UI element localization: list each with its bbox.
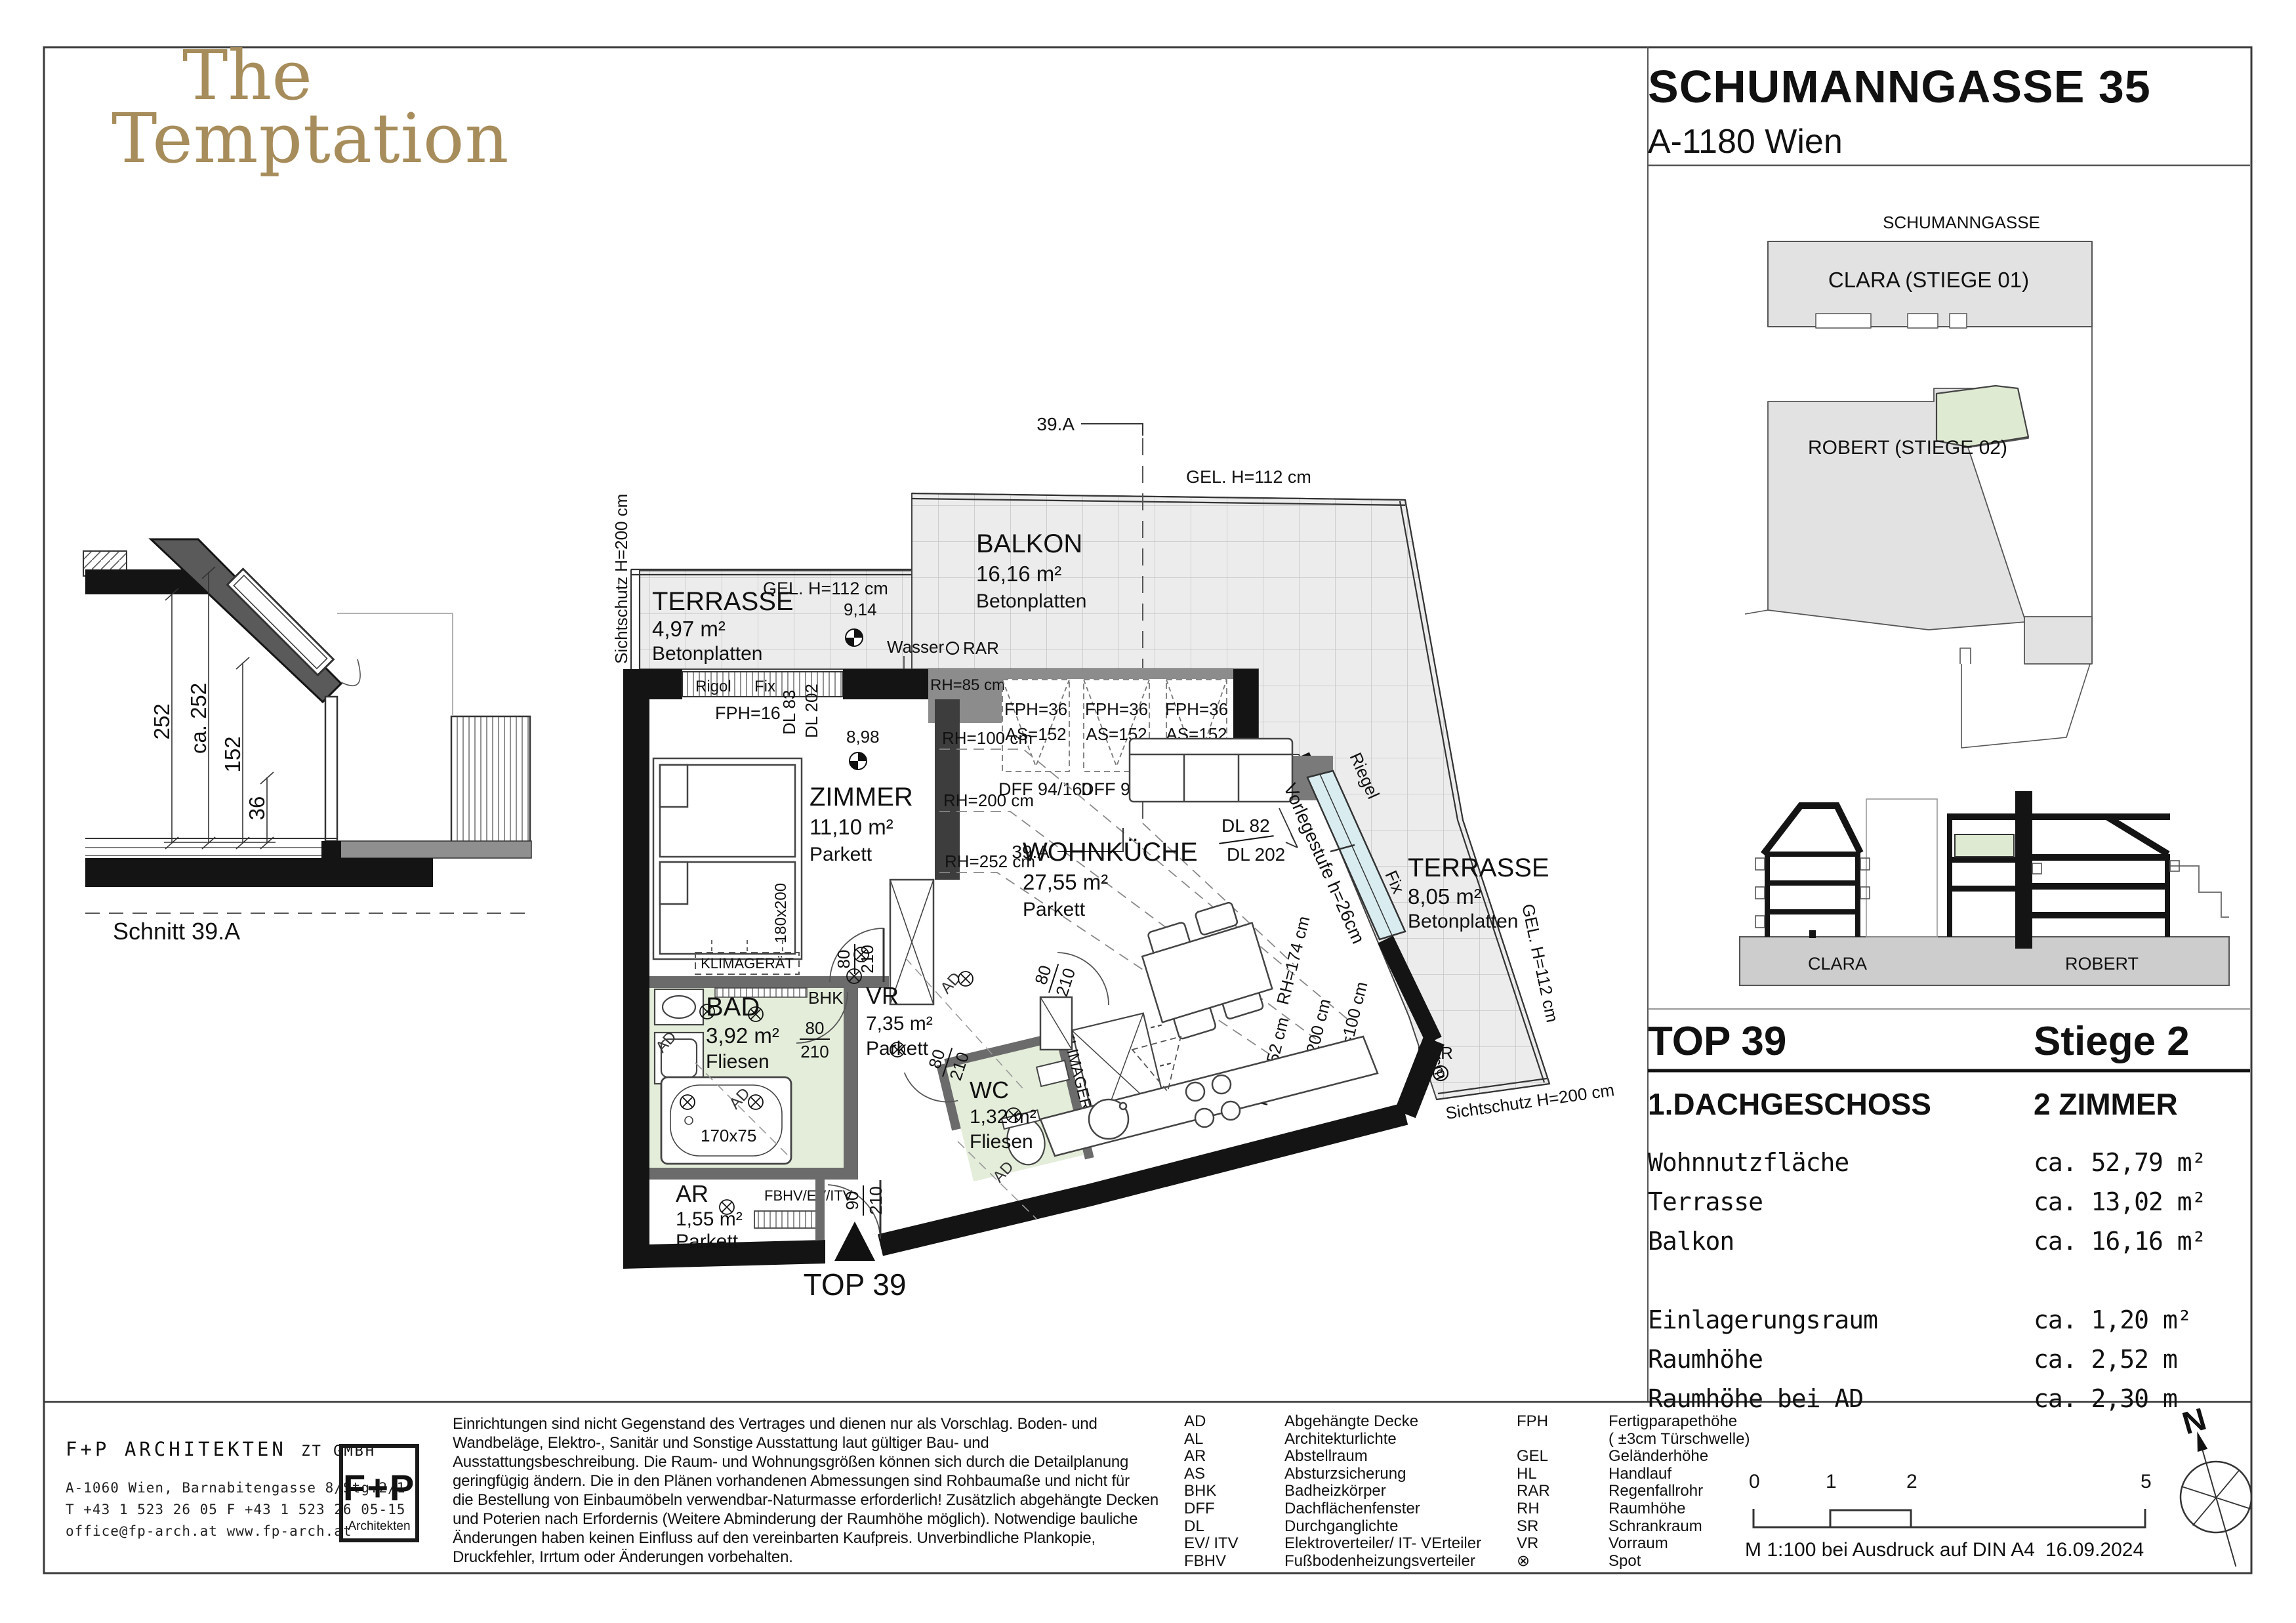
legend-desc: Architekturlichte xyxy=(1284,1431,1397,1448)
architect-logo-bottom: Architekten xyxy=(343,1519,415,1534)
site-plan: SCHUMANNGASSE CLARA (STIEGE 01) ROBERT (… xyxy=(1745,213,2092,748)
scale-0: 0 xyxy=(1749,1471,1760,1492)
fbhv-unit xyxy=(754,1211,820,1228)
brand-logo: The Temptation xyxy=(112,45,509,170)
legend-desc: Vorraum xyxy=(1609,1535,1668,1553)
info-row-label: Raumhöhe xyxy=(1648,1345,1763,1374)
architect-logo: F+P Architekten xyxy=(339,1444,419,1542)
legend-abbr: RH xyxy=(1517,1500,1609,1518)
legend-desc: Dachflächenfenster xyxy=(1284,1500,1420,1518)
balkon-area: 16,16 m² xyxy=(976,562,1061,586)
terrace1-name: TERRASSE xyxy=(652,587,794,616)
info-row-value: ca. 2,30 m xyxy=(2034,1384,2177,1413)
legend-abbr: SR xyxy=(1517,1518,1609,1536)
dl202-label: DL 202 xyxy=(802,684,821,738)
terrace1-floor: Betonplatten xyxy=(652,643,762,665)
section-dim-ca252: ca. 252 xyxy=(186,683,211,754)
legend-abbr xyxy=(1517,1431,1609,1448)
elevation-clara-label: CLARA xyxy=(1808,954,1867,974)
info-rooms: 2 ZIMMER xyxy=(2034,1086,2178,1122)
door-label-wk: 80 210 xyxy=(1029,958,1080,1000)
vr-name: VR xyxy=(866,982,899,1009)
dining-table xyxy=(1135,897,1279,1042)
legend-desc: Geländerhöhe xyxy=(1609,1448,1708,1466)
legend-abbr: BHK xyxy=(1184,1483,1284,1500)
survey-point-icon xyxy=(846,629,863,646)
architect-logo-top: F+P xyxy=(343,1466,415,1509)
sheet-drawing: SCHUMANNGASSE CLARA (STIEGE 01) ROBERT (… xyxy=(0,0,2296,1623)
site-robert-label: ROBERT (STIEGE 02) xyxy=(1808,437,2007,459)
rh100-label: RH=100 cm xyxy=(942,728,1033,748)
wasser-label: Wasser xyxy=(887,637,944,657)
vr-floor: Parkett xyxy=(866,1038,929,1059)
legend-abbr: HL xyxy=(1517,1466,1609,1483)
legend-column-2: FPHFertigparapethöhe ( ±3cm Türschwelle)… xyxy=(1517,1413,1750,1570)
elevation-robert-label: ROBERT xyxy=(2065,954,2139,974)
point-914: 9,14 xyxy=(844,600,877,619)
gel-label-top: GEL. H=112 cm xyxy=(1186,467,1311,487)
legend-abbr: DL xyxy=(1184,1518,1284,1536)
terrace1-area: 4,97 m² xyxy=(652,617,726,641)
legend-abbr: VR xyxy=(1517,1535,1609,1553)
fph36-2: FPH=36 xyxy=(1085,699,1148,719)
elevation-drawing: CLARA ROBERT xyxy=(1740,791,2229,985)
entrance-marker xyxy=(834,1222,875,1261)
svg-text:210: 210 xyxy=(800,1042,829,1061)
legend-abbr: AR xyxy=(1184,1448,1284,1466)
brand-logo-line2: Temptation xyxy=(112,108,509,171)
project-header: SCHUMANNGASSE 35 A-1180 Wien xyxy=(1648,60,2151,161)
legend-desc: Regenfallrohr xyxy=(1609,1483,1703,1500)
elevation-unit-highlight xyxy=(1955,834,2014,857)
section-dim-36: 36 xyxy=(245,796,269,821)
elevation-robert-building xyxy=(1947,791,2229,949)
wk-area: 27,55 m² xyxy=(1023,870,1108,894)
fph36-1: FPH=36 xyxy=(1004,699,1067,719)
info-row-value: ca. 52,79 m² xyxy=(2034,1148,2206,1177)
info-row-label: Terrasse xyxy=(1648,1187,1763,1216)
section-mark-top: 39.A xyxy=(1036,414,1075,434)
door-label-wc: 80 210 xyxy=(923,1042,974,1084)
bed-size-label: 180x200 xyxy=(772,883,790,943)
legend-abbr: FPH xyxy=(1517,1413,1609,1431)
balkon-floor: Betonplatten xyxy=(976,590,1086,612)
legend-desc: ( ±3cm Türschwelle) xyxy=(1609,1431,1750,1448)
bad-floor: Fliesen xyxy=(706,1051,769,1073)
info-top: TOP 39 xyxy=(1648,1018,1786,1065)
balkon-name: BALKON xyxy=(976,529,1082,558)
legend-desc: Abgehängte Decke xyxy=(1284,1413,1418,1431)
legend-column-1: ADAbgehängte Decke ALArchitekturlichte A… xyxy=(1184,1413,1481,1570)
legend-abbr: FBHV xyxy=(1184,1553,1284,1571)
wk-floor: Parkett xyxy=(1023,899,1086,920)
sofa xyxy=(1130,739,1292,802)
legend-desc: Abstellraum xyxy=(1284,1448,1368,1466)
rh200-label: RH=200 cm xyxy=(943,791,1034,810)
dl83-label: DL 83 xyxy=(779,690,799,735)
bathtub xyxy=(661,1077,791,1164)
bad-area: 3,92 m² xyxy=(706,1023,779,1048)
scale-5: 5 xyxy=(2141,1471,2152,1492)
svg-text:80: 80 xyxy=(834,950,853,969)
terrace2-name: TERRASSE xyxy=(1408,853,1549,882)
info-row-label: Raumhöhe bei AD xyxy=(1648,1384,1863,1413)
section-drawing: 252 ca. 252 152 36 Schnitt 39.A xyxy=(83,539,531,945)
svg-text:210: 210 xyxy=(866,1186,886,1214)
zimmer-area: 11,10 m² xyxy=(810,815,893,839)
plan-sheet: SCHUMANNGASSE CLARA (STIEGE 01) ROBERT (… xyxy=(0,0,2296,1623)
disclaimer-text: Einrichtungen sind nicht Gegenstand des … xyxy=(453,1414,1179,1567)
legend-desc: Handlauf xyxy=(1609,1466,1671,1483)
wall-bad-bottom xyxy=(649,1168,858,1180)
wall-left xyxy=(623,669,649,1257)
legend-desc: Raumhöhe xyxy=(1609,1500,1685,1518)
wc-floor: Fliesen xyxy=(970,1131,1033,1153)
legend-abbr: AS xyxy=(1184,1466,1284,1483)
zimmer-name: ZIMMER xyxy=(810,783,913,811)
point-898: 8,98 xyxy=(846,727,880,747)
wc-area: 1,32 m² xyxy=(970,1106,1036,1128)
wc-name: WC xyxy=(970,1077,1009,1103)
info-row-label: Wohnnutzfläche xyxy=(1648,1148,1849,1177)
legend-desc: Elektroverteiler/ IT- VErteiler xyxy=(1284,1535,1481,1553)
section-dim-152: 152 xyxy=(220,736,245,772)
info-row-value: ca. 1,20 m² xyxy=(2034,1305,2192,1334)
terrace2-area: 8,05 m² xyxy=(1408,884,1481,909)
north-arrow-icon: N xyxy=(2156,1395,2270,1576)
legend-desc: Badheizkörper xyxy=(1284,1483,1386,1500)
fbhv-label: FBHV/EV/ITV xyxy=(764,1187,853,1204)
info-row-value: ca. 16,16 m² xyxy=(2034,1227,2206,1256)
legend-abbr: RAR xyxy=(1517,1483,1609,1500)
zimmer-floor: Parkett xyxy=(810,844,872,865)
gel-label-right: GEL. H=112 cm xyxy=(1518,902,1563,1024)
scale-bar: 0 1 2 5 M 1:100 bei Ausdruck auf DIN A4 … xyxy=(1745,1471,2152,1561)
architect-name: F+P ARCHITEKTEN xyxy=(66,1438,287,1460)
wk-name: WOHNKÜCHE xyxy=(1023,838,1198,867)
wall-bad-right xyxy=(844,988,858,1180)
floor-plan: GEL. H=112 cm TERRASSE 4,97 m² Betonplat… xyxy=(611,414,1616,1302)
section-railing xyxy=(451,716,530,845)
rh174-label: RH=174 cm xyxy=(1273,914,1313,1006)
fph36-3: FPH=36 xyxy=(1165,699,1228,719)
rigol-label: Rigol xyxy=(695,678,731,695)
spot-icon: ⊗ xyxy=(1517,1553,1609,1571)
terrace2-floor: Betonplatten xyxy=(1408,911,1518,932)
ar-name: AR xyxy=(676,1180,708,1207)
washbasin xyxy=(655,989,703,1025)
survey-point-icon-2 xyxy=(850,752,867,770)
section-dim-252: 252 xyxy=(150,703,174,739)
klimageraet-zimmer-label: KLIMAGERÄT xyxy=(701,955,794,972)
rh85-top: RH=85 cm xyxy=(930,676,1005,694)
scale-1: 1 xyxy=(1826,1471,1837,1492)
dl82-label: DL 82 xyxy=(1221,815,1270,836)
site-clara-label: CLARA (STIEGE 01) xyxy=(1828,268,2029,292)
legend-abbr: GEL xyxy=(1517,1448,1609,1466)
bhk-label: BHK xyxy=(808,988,844,1008)
scale-note: M 1:100 bei Ausdruck auf DIN A4 xyxy=(1745,1539,2035,1561)
dl202-label-2: DL 202 xyxy=(1227,844,1285,865)
unit-label: TOP 39 xyxy=(804,1267,907,1302)
vr-area: 7,35 m² xyxy=(866,1013,933,1035)
info-row-value: ca. 13,02 m² xyxy=(2034,1187,2206,1216)
sichtschutz-left: Sichtschutz H=200 cm xyxy=(611,494,631,664)
svg-text:80: 80 xyxy=(806,1018,825,1038)
legend-desc: Fußbodenheizungsverteiler xyxy=(1284,1553,1475,1571)
legend-abbr: EV/ ITV xyxy=(1184,1535,1284,1553)
legend-abbr: AL xyxy=(1184,1431,1284,1448)
info-floor: 1.DACHGESCHOSS xyxy=(1648,1086,1931,1122)
fph16-label: FPH=16 xyxy=(715,703,781,723)
legend-abbr: AD xyxy=(1184,1413,1284,1431)
fix-label-1: Fix xyxy=(754,678,775,695)
north-label: N xyxy=(2179,1402,2210,1442)
ar-floor: Parkett xyxy=(676,1231,739,1252)
svg-text:90: 90 xyxy=(842,1191,862,1210)
scale-2: 2 xyxy=(1906,1471,1917,1492)
bad-name: BAD xyxy=(706,993,760,1021)
rar-label-1: RAR xyxy=(963,638,999,658)
legend-desc: Fertigparapethöhe xyxy=(1609,1413,1737,1431)
project-address: A-1180 Wien xyxy=(1648,122,2151,161)
legend-abbr: DFF xyxy=(1184,1500,1284,1518)
legend-desc: Absturzsicherung xyxy=(1284,1466,1406,1483)
info-row-label: Balkon xyxy=(1648,1227,1734,1256)
legend-desc: Schrankraum xyxy=(1609,1518,1702,1536)
info-row-label: Einlagerungsraum xyxy=(1648,1305,1877,1334)
legend-desc: Spot xyxy=(1609,1553,1641,1571)
project-title: SCHUMANNGASSE 35 xyxy=(1648,60,2151,113)
tub-size-label: 170x75 xyxy=(701,1126,756,1145)
site-street-label: SCHUMANNGASSE xyxy=(1883,213,2040,232)
info-stiege: Stiege 2 xyxy=(2034,1018,2190,1065)
plan-date: 16.09.2024 xyxy=(2045,1539,2144,1561)
section-label: Schnitt 39.A xyxy=(113,918,240,945)
info-row-value: ca. 2,52 m xyxy=(2034,1345,2177,1374)
legend-desc: Durchganglichte xyxy=(1284,1518,1398,1536)
elevation-clara-building xyxy=(1755,806,1870,938)
